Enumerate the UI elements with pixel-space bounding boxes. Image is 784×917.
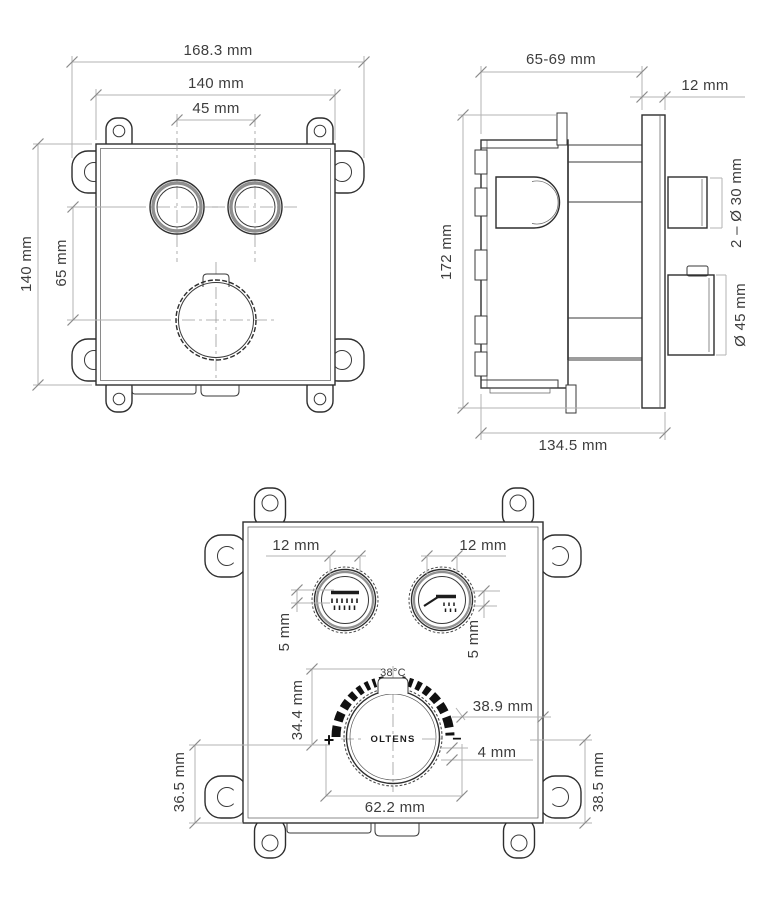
trim-bottom-stub-wide: [287, 823, 371, 833]
dim-label-right-ring: 5 mm: [465, 620, 482, 659]
dim-label-dial-to-bottom-left: 36.5 mm: [171, 752, 188, 812]
trim-ear-left-upper: [205, 535, 247, 577]
dim-label-height: 172 mm: [438, 224, 455, 280]
bottom-stub-wide: [132, 385, 196, 394]
wall-tab-bottom: [566, 385, 576, 413]
dim-label-arc-to-edge: 38.9 mm: [473, 698, 533, 715]
dim-label-small-handles: 2 – Ø 30 mm: [728, 158, 745, 248]
view-front-rough: 168.3 mm 140 mm 45 mm 140 mm 65 mm: [18, 42, 370, 412]
trim-bottom-stub-round: [375, 823, 419, 836]
dial-side: [668, 266, 714, 355]
face-plate: [642, 115, 665, 408]
dim-label-dial-diameter: Ø 45 mm: [732, 283, 749, 347]
dim-label-right-handle-marker: 12 mm: [459, 537, 506, 554]
trim-ear-right-upper: [539, 535, 581, 577]
brand-logo: OLTENS: [370, 734, 415, 745]
dim-label-handle-spacing: 45 mm: [192, 100, 239, 117]
dim-small-handles-diameter: 2 – Ø 30 mm: [710, 158, 745, 248]
dim-label-arc-height: 34.4 mm: [289, 680, 306, 740]
dim-label-dial-width: 62.2 mm: [365, 799, 425, 816]
dim-dial-diameter: Ø 45 mm: [716, 275, 749, 355]
dim-label-overall-width: 168.3 mm: [183, 42, 252, 59]
temp-setpoint-label: 38°C: [380, 667, 406, 679]
safety-button: [378, 678, 408, 694]
dim-label-total-depth: 134.5 mm: [538, 437, 607, 454]
dim-plate-thickness: 12 mm: [630, 77, 745, 110]
technical-drawing-sheet: 168.3 mm 140 mm 45 mm 140 mm 65 mm: [0, 0, 784, 917]
dim-label-left-handle-marker: 12 mm: [272, 537, 319, 554]
valve-body: [96, 144, 335, 385]
handle-small-side: [668, 177, 707, 228]
technical-drawing: 168.3 mm 140 mm 45 mm 140 mm 65 mm: [0, 0, 784, 917]
dim-label-body-width: 140 mm: [188, 75, 244, 92]
dim-handle-spacing: 45 mm: [172, 100, 261, 126]
dim-label-body-height: 140 mm: [18, 236, 35, 292]
trim-ear-left-lower: [205, 776, 247, 818]
trim-ear-right-lower: [539, 776, 581, 818]
trim-ear-bottom-left: [255, 818, 286, 858]
plus-marker: +: [324, 730, 335, 750]
dim-height: 172 mm: [438, 110, 640, 414]
dim-label-left-ring: 5 mm: [276, 613, 293, 652]
dim-label-handle-to-dial: 65 mm: [53, 239, 70, 286]
cartridge-dome: [496, 177, 560, 228]
dim-label-marker-gap: 4 mm: [478, 744, 517, 761]
dim-label-install-depth: 65-69 mm: [526, 51, 596, 68]
view-side: 65-69 mm 12 mm 172 mm 134.5 mm: [438, 51, 749, 454]
dim-label-plate-thickness: 12 mm: [681, 77, 728, 94]
bottom-stub-round: [201, 385, 239, 396]
view-front-trim: 38°C + − OLTENS 12 mm 12 mm 5 mm: [171, 488, 607, 858]
dim-label-dial-to-bottom-right: 38.5 mm: [590, 752, 607, 812]
wall-tab-top: [557, 113, 567, 145]
trim-ear-bottom-right: [504, 818, 535, 858]
